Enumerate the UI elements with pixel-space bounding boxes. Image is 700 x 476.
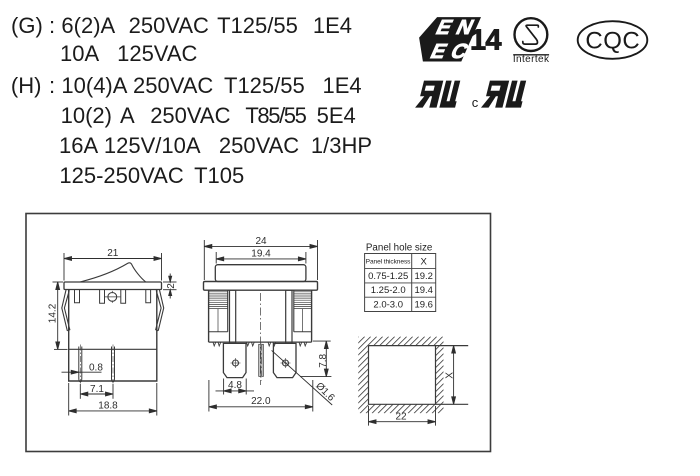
svg-text:21: 21 [107, 248, 119, 259]
svg-text:c: c [472, 95, 479, 110]
svg-text:1.25-2.0: 1.25-2.0 [371, 285, 406, 296]
svg-text:10A: 10A [60, 41, 99, 66]
svg-text:125VAC: 125VAC [117, 41, 197, 66]
svg-text:125V/10A: 125V/10A [104, 133, 201, 158]
svg-text::: : [49, 73, 55, 98]
svg-text:5E4: 5E4 [317, 103, 356, 128]
svg-text:X: X [421, 257, 428, 268]
svg-text:14: 14 [470, 25, 501, 57]
svg-text:7.1: 7.1 [90, 384, 104, 395]
svg-text:CQC: CQC [585, 28, 640, 55]
svg-text:(G): (G) [11, 13, 43, 38]
svg-text:T105: T105 [194, 163, 244, 188]
svg-text:250VAC: 250VAC [150, 103, 230, 128]
svg-text:0.8: 0.8 [89, 362, 103, 373]
svg-text:250VAC: 250VAC [219, 133, 299, 158]
svg-text:Panel hole size: Panel hole size [366, 242, 433, 253]
svg-text:18.8: 18.8 [98, 400, 118, 411]
svg-text:10(2): 10(2) [61, 103, 112, 128]
svg-text:1E4: 1E4 [323, 73, 362, 98]
svg-text:16A: 16A [59, 133, 98, 158]
svg-text:19.2: 19.2 [414, 271, 433, 282]
svg-text:T125/55: T125/55 [217, 13, 298, 38]
svg-text:10(4)A: 10(4)A [61, 73, 127, 98]
svg-text:125-250VAC: 125-250VAC [59, 163, 183, 188]
svg-text::: : [49, 13, 55, 38]
svg-text:6(2)A: 6(2)A [61, 13, 115, 38]
svg-text:0.75-1.25: 0.75-1.25 [368, 271, 408, 282]
svg-text:22.0: 22.0 [251, 396, 271, 407]
svg-text:2.0-3.0: 2.0-3.0 [373, 300, 403, 311]
svg-text:250VAC: 250VAC [133, 73, 213, 98]
svg-text:19.4: 19.4 [414, 285, 433, 296]
svg-text:2: 2 [166, 283, 177, 289]
svg-text:A: A [120, 103, 135, 128]
svg-text:1/3HP: 1/3HP [311, 133, 372, 158]
svg-text:14.2: 14.2 [48, 303, 59, 323]
svg-text:1E4: 1E4 [313, 13, 352, 38]
svg-text:4.8: 4.8 [228, 380, 242, 391]
svg-text:(H): (H) [11, 73, 42, 98]
svg-text:Panel thickness: Panel thickness [366, 259, 411, 266]
svg-text:24: 24 [255, 236, 267, 247]
svg-text:T125/55: T125/55 [224, 73, 305, 98]
svg-text:19.6: 19.6 [414, 300, 433, 311]
svg-text:22: 22 [395, 411, 407, 422]
svg-text:19.4: 19.4 [251, 249, 271, 260]
svg-text:Intertek: Intertek [513, 54, 550, 65]
svg-text:250VAC: 250VAC [129, 13, 209, 38]
svg-text:Ø1.6: Ø1.6 [313, 381, 336, 404]
svg-text:7.8: 7.8 [318, 353, 329, 367]
svg-text:X: X [445, 372, 456, 379]
svg-text:T85/55: T85/55 [245, 103, 306, 128]
